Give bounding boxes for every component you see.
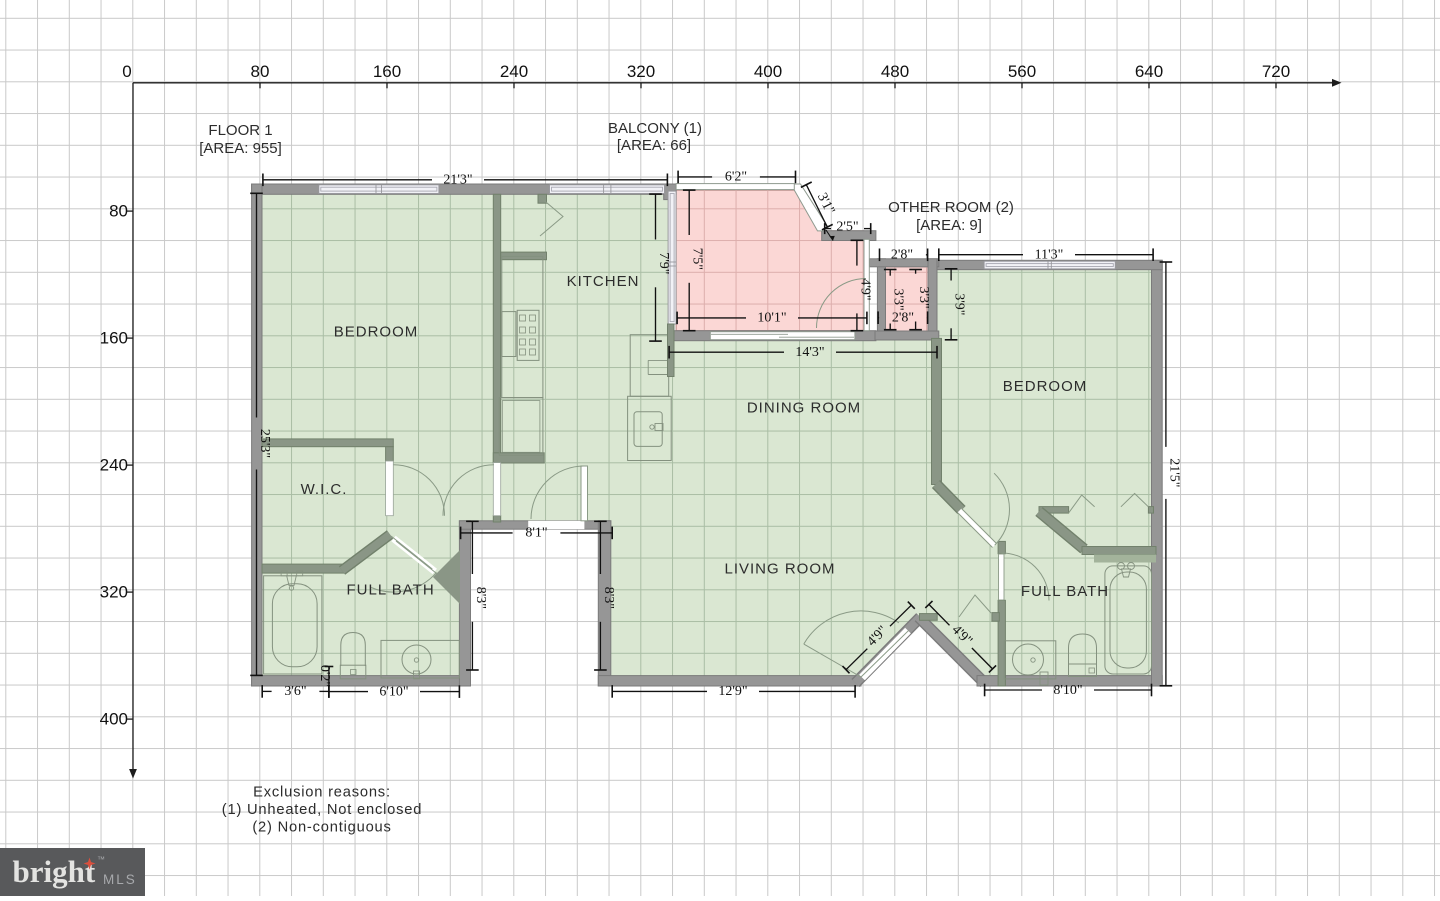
svg-text:7'5": 7'5" <box>690 248 705 270</box>
svg-text:21'5": 21'5" <box>1166 458 1181 487</box>
svg-text:7'9": 7'9" <box>656 252 671 274</box>
svg-text:400: 400 <box>754 62 782 81</box>
svg-text:3'3": 3'3" <box>916 286 931 308</box>
svg-text:320: 320 <box>627 62 655 81</box>
svg-text:FULL BATH: FULL BATH <box>347 582 435 599</box>
svg-text:[AREA: 955]: [AREA: 955] <box>199 140 282 157</box>
svg-text:240: 240 <box>100 456 128 475</box>
svg-text:[AREA: 9]: [AREA: 9] <box>916 217 982 234</box>
svg-text:0'2": 0'2" <box>317 665 332 687</box>
svg-text:FULL BATH: FULL BATH <box>1021 583 1109 600</box>
svg-text:400: 400 <box>100 710 128 729</box>
svg-text:12'9": 12'9" <box>718 684 747 699</box>
svg-text:21'3": 21'3" <box>443 173 472 188</box>
svg-text:80: 80 <box>109 202 128 221</box>
svg-text:320: 320 <box>100 583 128 602</box>
svg-text:Exclusion reasons:: Exclusion reasons: <box>253 784 391 800</box>
svg-text:KITCHEN: KITCHEN <box>567 273 640 290</box>
svg-text:2'8": 2'8" <box>892 311 914 326</box>
svg-text:™: ™ <box>97 855 105 864</box>
svg-text:160: 160 <box>373 62 401 81</box>
svg-text:14'3": 14'3" <box>795 345 824 360</box>
svg-text:BALCONY (1): BALCONY (1) <box>608 120 702 137</box>
svg-text:11'3": 11'3" <box>1035 248 1064 263</box>
svg-text:6'2": 6'2" <box>725 170 747 185</box>
svg-text:[AREA: 66]: [AREA: 66] <box>617 137 691 154</box>
svg-text:0: 0 <box>122 62 131 81</box>
svg-text:MLS: MLS <box>103 872 137 887</box>
svg-text:10'1": 10'1" <box>757 311 786 326</box>
svg-text:(1) Unheated, Not enclosed: (1) Unheated, Not enclosed <box>222 802 422 818</box>
svg-text:DINING ROOM: DINING ROOM <box>747 400 861 417</box>
svg-text:BEDROOM: BEDROOM <box>1003 378 1088 395</box>
svg-text:FLOOR 1: FLOOR 1 <box>208 122 272 139</box>
svg-text:640: 640 <box>1135 62 1163 81</box>
svg-text:OTHER ROOM (2): OTHER ROOM (2) <box>888 199 1014 216</box>
svg-text:3'6": 3'6" <box>284 684 306 699</box>
svg-text:(2) Non-contiguous: (2) Non-contiguous <box>252 820 391 836</box>
svg-text:3'3": 3'3" <box>891 288 906 310</box>
svg-text:480: 480 <box>881 62 909 81</box>
svg-text:8'3": 8'3" <box>601 587 616 609</box>
svg-text:2'8": 2'8" <box>891 248 913 263</box>
svg-text:2'5": 2'5" <box>836 220 858 235</box>
svg-text:8'10": 8'10" <box>1053 683 1082 698</box>
svg-text:80: 80 <box>251 62 270 81</box>
svg-text:BEDROOM: BEDROOM <box>334 324 419 341</box>
svg-text:LIVING ROOM: LIVING ROOM <box>724 561 835 578</box>
svg-text:bright: bright <box>13 854 96 889</box>
svg-text:3'9": 3'9" <box>952 293 967 315</box>
svg-text:240: 240 <box>500 62 528 81</box>
svg-text:25'3": 25'3" <box>257 429 272 458</box>
svg-text:160: 160 <box>100 329 128 348</box>
svg-text:720: 720 <box>1262 62 1290 81</box>
svg-text:8'1": 8'1" <box>525 526 547 541</box>
svg-text:W.I.C.: W.I.C. <box>301 481 348 498</box>
svg-text:560: 560 <box>1008 62 1036 81</box>
svg-text:4'9": 4'9" <box>857 278 872 300</box>
svg-text:6'10": 6'10" <box>379 684 408 699</box>
svg-text:8'3": 8'3" <box>473 587 488 609</box>
